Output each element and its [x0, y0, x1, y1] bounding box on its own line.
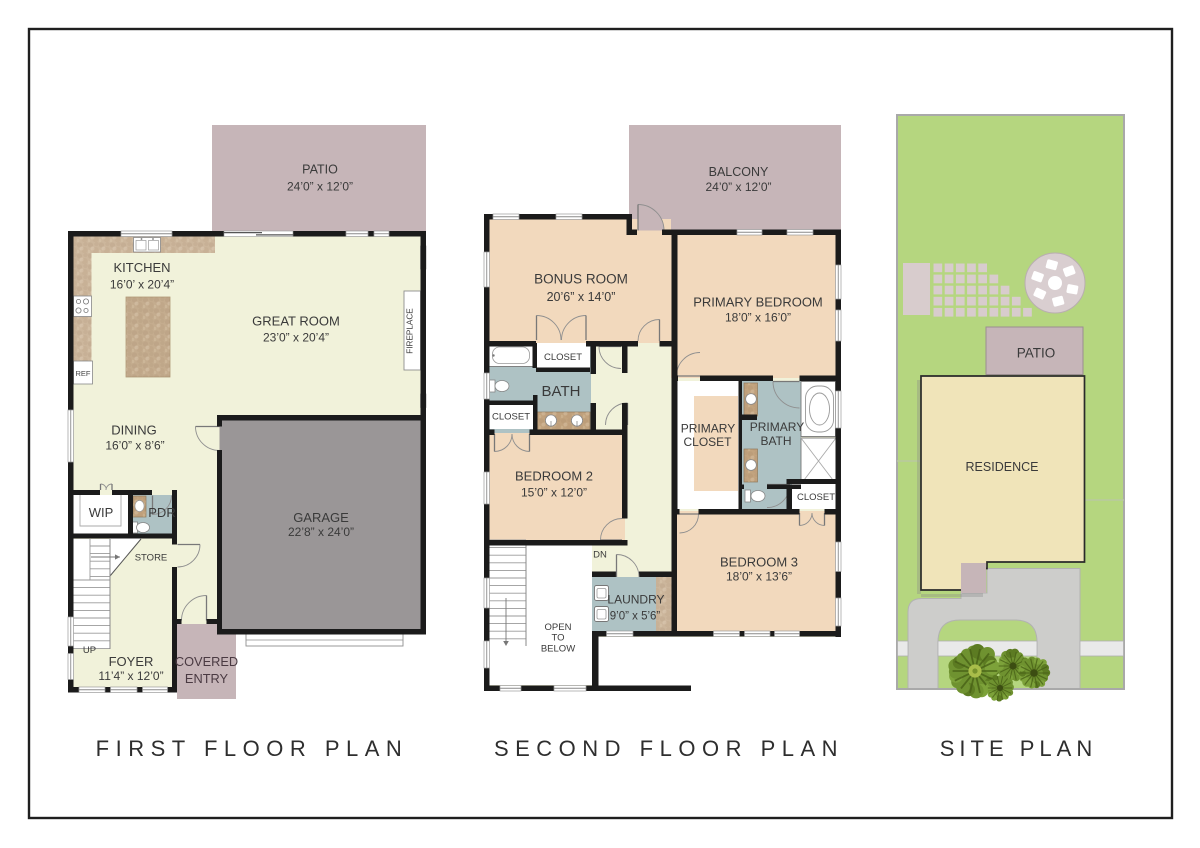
svg-text:PRIMARY: PRIMARY — [750, 420, 804, 434]
svg-text:BONUS ROOM: BONUS ROOM — [534, 272, 628, 287]
svg-text:OPEN: OPEN — [545, 622, 572, 633]
svg-text:BATH: BATH — [760, 434, 791, 448]
svg-text:23’0” x 20’4”: 23’0” x 20’4” — [263, 331, 329, 345]
svg-text:PDR: PDR — [148, 505, 175, 520]
svg-text:BEDROOM 3: BEDROOM 3 — [720, 555, 798, 570]
svg-text:CLOSET: CLOSET — [492, 412, 530, 423]
svg-text:FIREPLACE: FIREPLACE — [406, 308, 415, 354]
svg-text:PRIMARY BEDROOM: PRIMARY BEDROOM — [693, 295, 823, 310]
svg-text:16’0” x 8’6”: 16’0” x 8’6” — [105, 439, 164, 453]
svg-text:22’8” x 24’0”: 22’8” x 24’0” — [288, 525, 354, 539]
svg-text:STORE: STORE — [135, 553, 168, 564]
svg-text:PRIMARY: PRIMARY — [681, 422, 735, 436]
svg-text:20’6” x 14’0”: 20’6” x 14’0” — [547, 290, 616, 304]
svg-text:COVERED: COVERED — [175, 654, 238, 669]
svg-text:PATIO: PATIO — [302, 163, 338, 177]
svg-text:GREAT ROOM: GREAT ROOM — [252, 314, 340, 329]
svg-text:TO: TO — [551, 633, 564, 644]
svg-text:9’0” x 5’6”: 9’0” x 5’6” — [610, 611, 661, 623]
svg-text:CLOSET: CLOSET — [683, 435, 732, 449]
svg-text:LAUNDRY: LAUNDRY — [607, 593, 664, 607]
svg-text:BATH: BATH — [542, 383, 581, 400]
svg-text:BELOW: BELOW — [541, 644, 575, 655]
svg-text:DINING: DINING — [111, 423, 157, 438]
svg-text:24’0” x 12’0”: 24’0” x 12’0” — [705, 180, 771, 194]
svg-text:16’0’ x 20’4”: 16’0’ x 20’4” — [110, 278, 174, 292]
svg-text:FIRST FLOOR PLAN: FIRST FLOOR PLAN — [96, 736, 409, 761]
svg-text:ENTRY: ENTRY — [185, 671, 229, 686]
svg-text:REF: REF — [76, 369, 91, 378]
svg-text:PATIO: PATIO — [1017, 346, 1056, 361]
svg-text:FOYER: FOYER — [109, 654, 154, 669]
svg-text:18’0” x 16’0”: 18’0” x 16’0” — [725, 311, 791, 325]
svg-text:CLOSET: CLOSET — [544, 352, 582, 363]
svg-text:DN: DN — [593, 550, 607, 561]
svg-text:24’0” x 12’0”: 24’0” x 12’0” — [287, 180, 353, 194]
svg-text:RESIDENCE: RESIDENCE — [966, 460, 1039, 474]
svg-text:UP: UP — [83, 645, 96, 656]
svg-text:15’0” x 12’0”: 15’0” x 12’0” — [521, 486, 587, 500]
svg-text:18’0” x 13’6”: 18’0” x 13’6” — [726, 570, 792, 584]
svg-text:KITCHEN: KITCHEN — [113, 260, 170, 275]
svg-text:CLOSET: CLOSET — [797, 492, 835, 503]
svg-text:GARAGE: GARAGE — [293, 510, 349, 525]
svg-text:11’4” x 12’0”: 11’4” x 12’0” — [98, 669, 163, 683]
svg-text:BALCONY: BALCONY — [709, 165, 769, 179]
svg-text:SITE PLAN: SITE PLAN — [940, 736, 1097, 761]
svg-text:WIP: WIP — [89, 505, 114, 520]
svg-text:SECOND FLOOR PLAN: SECOND FLOOR PLAN — [494, 736, 844, 761]
svg-text:BEDROOM 2: BEDROOM 2 — [515, 469, 593, 484]
